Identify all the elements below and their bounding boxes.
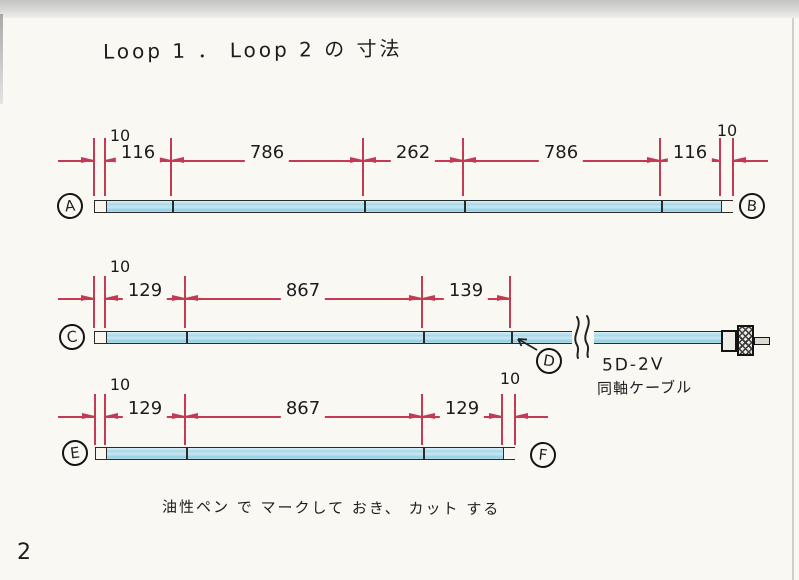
dim-value: 129	[123, 281, 167, 301]
dim-tick	[659, 138, 661, 196]
arrowhead-icon	[363, 157, 376, 163]
dim-tick	[104, 394, 106, 445]
node-label-f: F	[529, 441, 558, 470]
bar-divider	[464, 201, 466, 212]
node-letter: E	[69, 445, 80, 461]
arrowhead-icon	[185, 413, 198, 419]
dim-value: 786	[245, 143, 289, 163]
coax-connector	[737, 325, 754, 356]
arrowhead-icon	[409, 295, 422, 301]
dim-value: 867	[281, 399, 325, 419]
dim-tick	[93, 276, 95, 328]
node-label-b: B	[738, 192, 766, 220]
dim-value: 139	[444, 281, 488, 301]
dim-value-margin: 10	[110, 376, 130, 393]
node-label-c: C	[57, 322, 86, 351]
page-title: Loop 1 ． Loop 2 の 寸法	[103, 32, 403, 64]
arrowhead-icon	[409, 413, 422, 419]
dim-tick	[462, 138, 464, 196]
bar-end-segment	[95, 201, 107, 212]
bar-end-segment	[96, 448, 107, 459]
dim-tick	[104, 276, 106, 328]
bar-divider	[186, 448, 188, 459]
node-letter: B	[746, 198, 758, 214]
dim-value-margin: 10	[717, 122, 737, 139]
node-label-a: A	[56, 192, 85, 221]
arrowhead-icon	[185, 295, 198, 301]
dim-value-margin: 10	[500, 370, 520, 387]
arrowhead-icon	[733, 157, 746, 163]
break-symbol-icon	[565, 315, 599, 359]
arrowhead-icon	[422, 413, 435, 419]
dim-tick	[421, 276, 423, 328]
dim-value: 116	[116, 143, 160, 163]
dim-tick	[421, 394, 423, 445]
dim-value: 262	[391, 143, 435, 163]
node-letter: D	[542, 353, 556, 370]
node-label-e: E	[61, 439, 90, 468]
bar-divider	[172, 201, 174, 212]
feed-point-arrow-icon	[513, 336, 539, 352]
dim-tick	[93, 138, 95, 196]
arrowhead-icon	[450, 157, 463, 163]
scanner-edge-left	[0, 14, 3, 104]
node-letter: F	[538, 447, 548, 463]
dim-tick	[719, 138, 721, 196]
arrowhead-icon	[105, 295, 118, 301]
arrowhead-icon	[171, 157, 184, 163]
arrowhead-icon	[515, 413, 528, 419]
dim-tick	[94, 394, 96, 445]
dim-value: 129	[123, 399, 167, 419]
dim-tick	[184, 394, 186, 445]
element-bar-loop2-top	[94, 331, 722, 344]
arrowhead-icon	[489, 413, 502, 419]
page-number: 2	[17, 540, 31, 565]
dim-tick	[184, 276, 186, 328]
dim-tick	[509, 276, 511, 328]
bar-end-segment	[503, 448, 517, 459]
bar-divider	[423, 332, 425, 343]
dim-tick	[501, 394, 503, 445]
dim-value: 129	[440, 399, 484, 419]
arrowhead-icon	[172, 413, 185, 419]
bar-end-segment	[721, 201, 735, 212]
arrowhead-icon	[647, 157, 660, 163]
cable-type-label: 5D-2V	[602, 354, 665, 375]
node-letter: C	[66, 329, 78, 345]
dim-tick	[732, 138, 734, 196]
dim-tick	[170, 138, 172, 196]
cable-name-label: 同軸ケーブル	[597, 376, 692, 399]
dim-tick	[514, 394, 516, 445]
arrowhead-icon	[463, 157, 476, 163]
scanned-page: Loop 1 ． Loop 2 の 寸法 10	[0, 0, 799, 580]
element-bar-loop2-bottom	[95, 447, 515, 460]
instruction-note: 油性ペン で マークして おき、 カット する	[162, 496, 500, 519]
dim-value: 786	[539, 143, 583, 163]
arrowhead-icon	[350, 157, 363, 163]
bar-end-segment	[95, 332, 107, 343]
dim-tick	[104, 138, 106, 196]
bar-divider	[186, 332, 188, 343]
coax-pin	[754, 337, 770, 345]
scanner-edge-right	[792, 18, 794, 580]
element-bar-loop1	[94, 200, 733, 213]
scanner-edge-band	[0, 0, 799, 18]
dim-value-margin: 10	[110, 258, 130, 275]
dim-value: 867	[281, 281, 325, 301]
bar-divider	[661, 201, 663, 212]
arrowhead-icon	[497, 295, 510, 301]
arrowhead-icon	[422, 295, 435, 301]
dim-tick	[362, 138, 364, 196]
arrowhead-icon	[105, 413, 118, 419]
bar-divider	[364, 201, 366, 212]
bar-divider	[423, 448, 425, 459]
arrowhead-icon	[172, 295, 185, 301]
node-letter: A	[64, 198, 76, 214]
coax-ferrule	[721, 330, 737, 352]
dim-value: 116	[668, 143, 712, 163]
